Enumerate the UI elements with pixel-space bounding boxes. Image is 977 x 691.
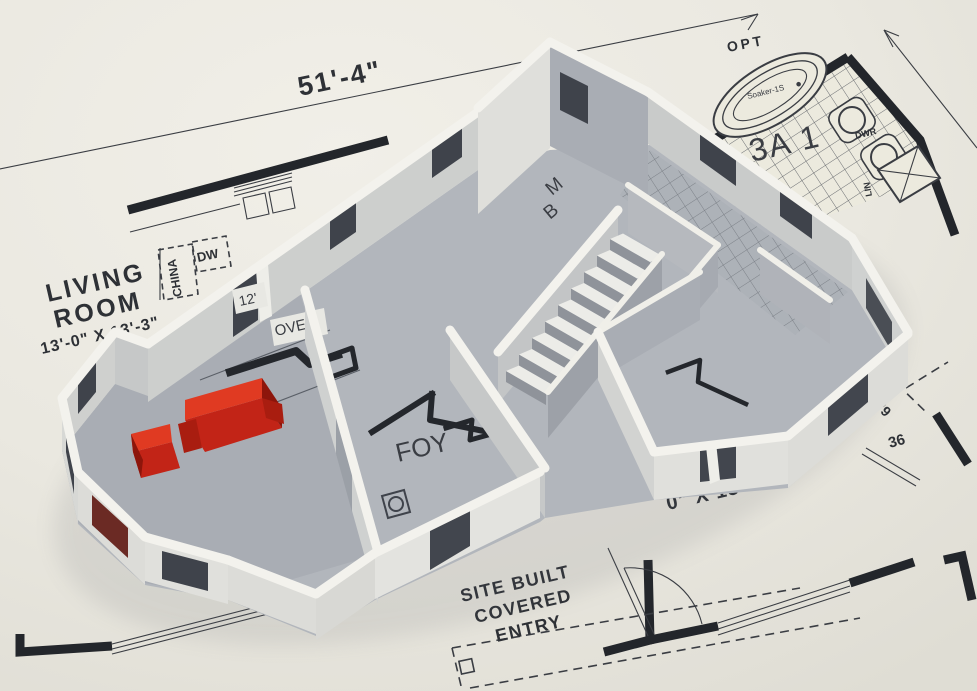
architectural-render: 51'-4" OPT Soaker-1S <box>0 0 977 691</box>
blueprint-3d-scene: 51'-4" OPT Soaker-1S <box>0 0 977 691</box>
